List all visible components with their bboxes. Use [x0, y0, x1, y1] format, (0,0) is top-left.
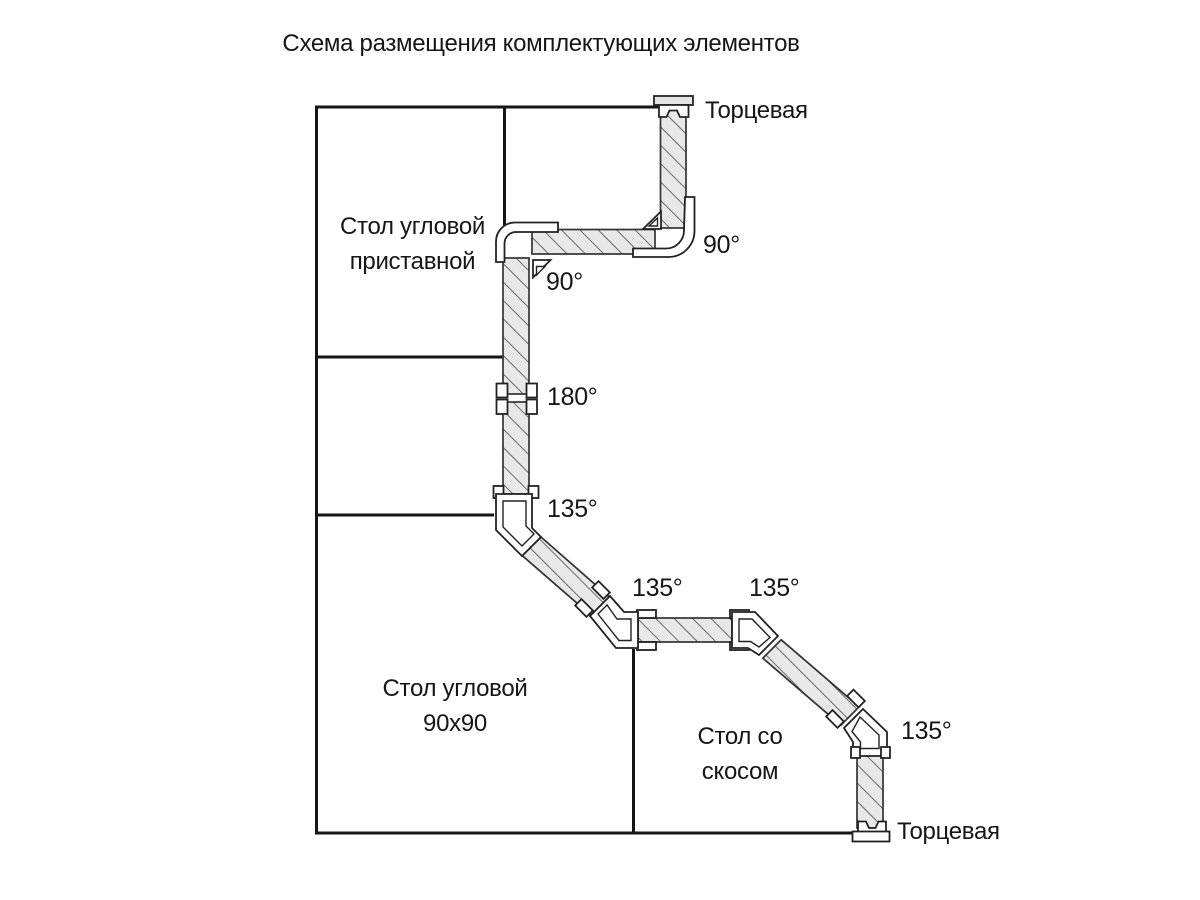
angle-label-90-top-right: 90° — [703, 231, 740, 260]
strip-left-vertical-lower — [503, 402, 529, 494]
table-label-bevel: Стол со скосом — [640, 719, 840, 789]
strip-mid-horizontal — [638, 618, 732, 642]
connector-135-third — [730, 610, 778, 655]
table-label-line: 90х90 — [317, 706, 593, 741]
end-cap-label-top: Торцевая — [705, 97, 808, 125]
end-cap-label-bottom: Торцевая — [897, 818, 1000, 846]
strip-bottom-vertical — [857, 752, 883, 828]
table-label-corner-attached: Стол угловой приставной — [320, 209, 505, 279]
schematic-page: Схема размещения комплектующих элементов… — [0, 0, 1200, 900]
edge-profile-diagram — [0, 0, 1200, 900]
strip-diagonal-1 — [522, 537, 609, 615]
angle-label-180: 180° — [547, 383, 598, 412]
table-label-line: Стол угловой — [320, 209, 505, 244]
angle-label-135-fourth: 135° — [901, 717, 952, 746]
angle-label-135-second: 135° — [632, 574, 683, 603]
angle-label-90-top-left: 90° — [546, 268, 583, 297]
strip-left-vertical-upper — [503, 258, 529, 394]
corner-triangle-inner — [537, 267, 546, 276]
table-label-line: Стол угловой — [317, 671, 593, 706]
table-label-corner-90x90: Стол угловой 90х90 — [317, 671, 593, 741]
table-label-line: приставной — [320, 244, 505, 279]
strip-diagonal-2 — [763, 640, 859, 725]
angle-label-135-first: 135° — [547, 495, 598, 524]
diagram-title: Схема размещения комплектующих элементов — [241, 30, 841, 58]
table-label-line: скосом — [640, 754, 840, 789]
strip-top-vertical — [661, 110, 687, 228]
table-label-line: Стол со — [640, 719, 840, 754]
connector-135-fourth — [844, 709, 890, 758]
angle-label-135-third: 135° — [749, 574, 800, 603]
